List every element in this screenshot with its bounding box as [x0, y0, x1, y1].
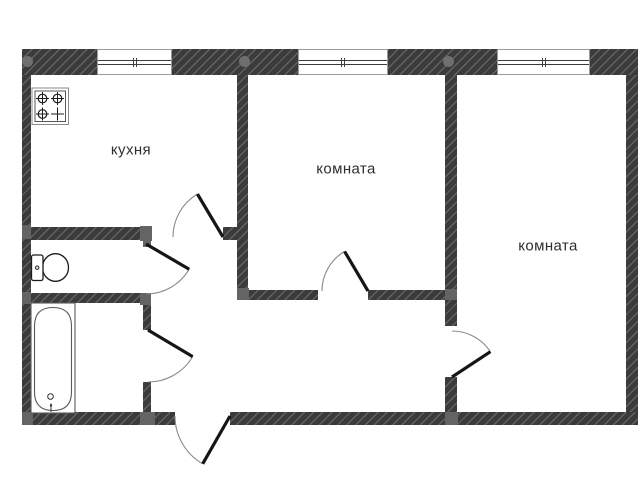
stove-icon	[32, 88, 69, 125]
entrance-door-swing-icon	[175, 416, 230, 464]
wc-door-swing-icon	[146, 244, 189, 294]
bath-door-swing-icon	[148, 330, 193, 382]
room-label-kitchen: кухня	[111, 142, 151, 159]
kitchen-door-swing-icon	[173, 194, 223, 237]
bathtub-icon	[31, 303, 75, 413]
room-label-room-1: комната	[316, 161, 376, 178]
toilet-icon	[32, 254, 69, 282]
room2-door-swing-icon	[452, 331, 490, 377]
room1-door-swing-icon	[322, 251, 368, 291]
floor-plan: кухня комната комната	[0, 0, 640, 479]
room-label-room-2: комната	[518, 238, 578, 255]
